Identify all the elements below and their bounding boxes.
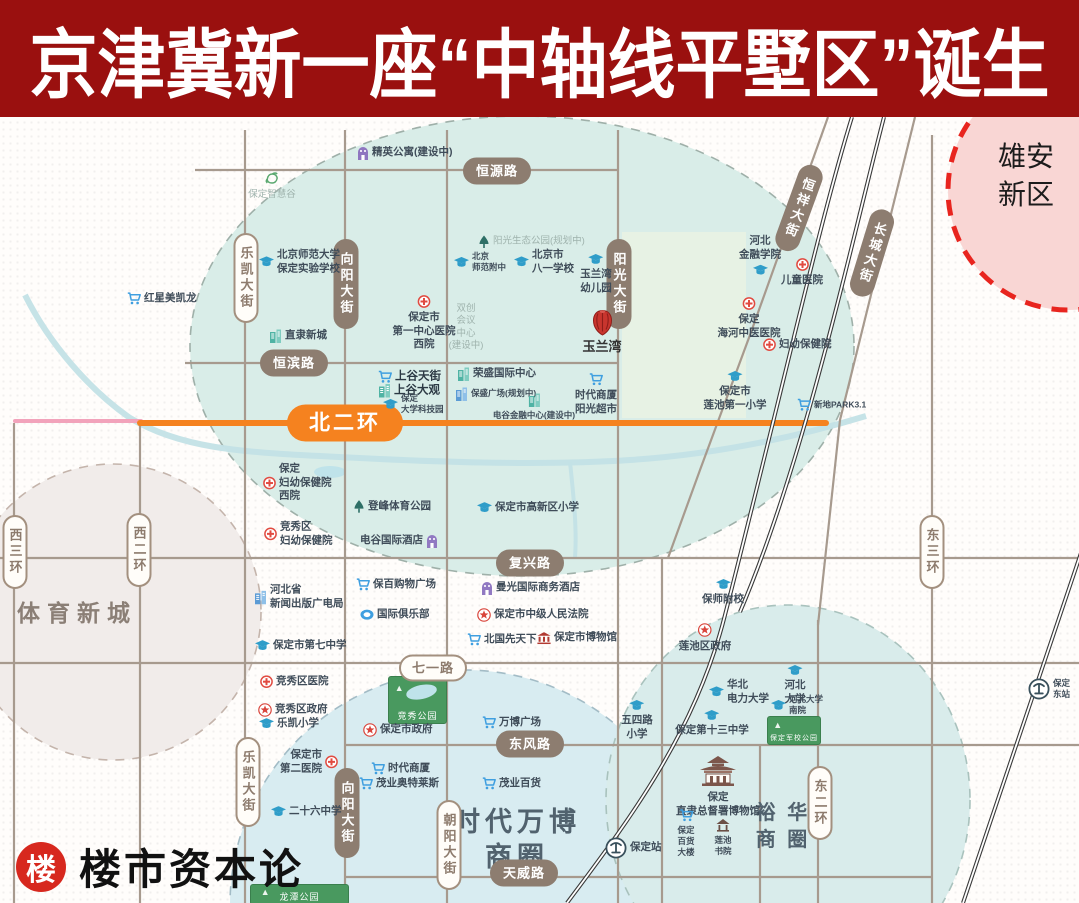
poi-hospital: 保定市 第二医院: [280, 748, 338, 775]
poi-club: 国际俱乐部: [360, 608, 430, 622]
cart-icon: [467, 633, 481, 646]
building-purple-icon: [357, 146, 369, 160]
school-icon: [716, 579, 731, 590]
school-icon: [728, 371, 743, 382]
tree-icon: ▲: [773, 720, 782, 730]
hospital-icon: [743, 297, 756, 310]
school-icon: [259, 257, 274, 268]
poi-hospital: 妇幼保健院: [763, 338, 832, 352]
poi-station: 保定 东站: [1028, 678, 1070, 700]
school-icon: [630, 700, 645, 711]
poi-cart: 茂业百货: [482, 777, 541, 791]
star-icon: [363, 723, 377, 737]
poi-building-purple: 精英公寓(建设中): [357, 146, 453, 160]
poi-cart: 茂业奥特莱斯: [359, 777, 439, 791]
hospital-icon: [763, 338, 776, 351]
temple-icon: [695, 756, 741, 788]
poi-label: 北京 师范附中: [472, 251, 506, 273]
cart-icon: [359, 777, 373, 790]
poi-school: 保定第十三中学: [675, 710, 749, 738]
poi-label: 保定 妇幼保健院 西院: [279, 463, 332, 504]
poi-school: 北京 师范附中: [454, 251, 506, 273]
poi-school: 保师附校: [702, 579, 744, 607]
poi-hospital: 保定 海河中医医院: [718, 297, 781, 340]
poi-cart: 北国先天下: [467, 633, 537, 647]
road-label: 西三环: [3, 515, 28, 589]
tree-icon: ▲: [395, 683, 404, 693]
cart-icon: [797, 399, 811, 412]
poi-park: 阳光生态公园(规划中): [478, 236, 585, 249]
road-label: 朝阳大街: [437, 800, 462, 890]
logo: 楼 楼市资本论: [16, 836, 304, 897]
star-icon: [698, 623, 712, 637]
poi-hospital: 保定 妇幼保健院 西院: [263, 463, 332, 504]
poi-label: 阳光生态公园(规划中): [493, 236, 585, 248]
poi-label: 曼光国际商务酒店: [496, 581, 580, 595]
school-icon: [383, 399, 398, 410]
poi-label: 河北 金融学院: [739, 235, 781, 262]
building-green-icon: [527, 393, 540, 407]
poi-label: 保师附校: [702, 593, 744, 607]
school-icon: [271, 806, 286, 817]
cart-icon: [356, 578, 370, 591]
poi-hotel: 电谷国际酒店: [360, 534, 438, 548]
school-icon: [771, 700, 786, 711]
poi-star: 保定市政府: [363, 723, 433, 737]
poi-label: 登峰体育公园: [368, 500, 431, 514]
poi-label: 北京师范大学 保定实验学校: [277, 248, 340, 275]
poi-none: 双创 会议 中心 (建设中): [449, 303, 484, 352]
poi-label: 保定市中级人民法院: [494, 608, 589, 622]
valley-icon: [263, 171, 281, 186]
cart-icon: [589, 373, 603, 386]
poi-label: 时代商厦: [388, 762, 430, 776]
poi-label: 河北大学 南院: [789, 694, 823, 716]
poi-label: 妇幼保健院: [779, 338, 832, 352]
poi-cart: 红星美凯龙: [127, 292, 197, 306]
map-canvas: [0, 0, 1079, 903]
park-block: ▲保定军校公园: [767, 716, 821, 745]
star-icon: [477, 608, 491, 622]
poi-label: 上谷天街: [395, 370, 441, 385]
poi-station: 保定站: [605, 837, 662, 859]
poi-label: 红星美凯龙: [144, 292, 197, 306]
poi-label: 五四路 小学: [621, 714, 653, 741]
school-icon: [259, 718, 274, 729]
poi-label: 二十六中学: [289, 805, 342, 819]
logo-title: 楼市资本论: [79, 836, 304, 897]
poi-label: 河北省 新闻出版广电局: [270, 583, 344, 610]
poi-valley: 保定智慧谷: [248, 171, 296, 201]
poi-label: 保定市政府: [380, 723, 433, 737]
park-icon: [353, 500, 365, 513]
poi-label: 茂业奥特莱斯: [376, 777, 439, 791]
poi-school: 保定市 莲池第一小学: [704, 371, 767, 412]
poi-star: 竞秀区政府: [258, 703, 328, 717]
poi-label: 保定 大学科技园: [401, 393, 444, 415]
road-label: 乐凯大街: [234, 233, 259, 323]
school-icon: [788, 665, 803, 676]
poi-label: 玉兰湾: [582, 339, 621, 356]
station-icon: [605, 837, 627, 859]
poi-label: 保定 百货 大楼: [677, 825, 694, 858]
poi-label: 茂业百货: [499, 777, 541, 791]
poi-label: 保百购物广场: [373, 578, 436, 592]
poi-star: 莲池区政府: [679, 623, 732, 654]
hotel-icon: [481, 581, 493, 595]
road-label: 复兴路: [496, 550, 564, 577]
road-label: 东二环: [808, 766, 833, 840]
poi-label: 乐凯小学: [277, 717, 319, 731]
poi-label: 保定第十三中学: [675, 724, 749, 738]
poi-hospital: 儿童医院: [781, 258, 823, 288]
cart-icon: [371, 762, 385, 775]
road-label: 天威路: [490, 860, 558, 887]
poi-label: 保定市高新区小学: [495, 501, 579, 515]
park-lake: [405, 682, 439, 702]
poi-label: 玉兰湾 幼儿园: [580, 268, 612, 295]
star-icon: [258, 703, 272, 717]
poi-label: 竞秀区医院: [276, 675, 329, 689]
poi-label: 国际俱乐部: [377, 608, 430, 622]
school-icon: [709, 687, 724, 698]
poi-school: 保定 大学科技园: [383, 393, 444, 415]
poi-school: 保定市高新区小学: [477, 501, 579, 515]
poi-label: 新地PARK3.1: [814, 399, 866, 410]
poi-label: 保定市第七中学: [273, 639, 347, 653]
poi-school: 河北大学 南院: [771, 694, 823, 716]
park-label: 保定军校公园: [770, 735, 818, 744]
pin-icon: [591, 309, 613, 336]
poi-hospital: 保定市 第一中心医院 西院: [393, 295, 456, 352]
poi-label: 北京市 八一学校: [532, 248, 574, 275]
school-icon: [255, 640, 270, 651]
poi-label: 精英公寓(建设中): [372, 146, 453, 160]
club-icon: [360, 609, 374, 620]
poi-label: 保定市 第二医院: [280, 748, 322, 775]
xiongan-badge-label: 雄安 新区: [982, 138, 1070, 214]
hospital-icon: [325, 756, 338, 769]
featured-pin: 玉兰湾: [582, 309, 621, 356]
cart-icon: [482, 777, 496, 790]
school-icon: [753, 265, 768, 276]
area-label: 裕 华 商 圈: [756, 800, 811, 854]
poi-label: 保定站: [630, 841, 662, 855]
road-label: 东三环: [920, 515, 945, 589]
poi-school: 华北 电力大学: [709, 678, 769, 705]
infographic: 京津冀新一座“中轴线平墅区”诞生 雄安 新区 乐凯大街向阳大街恒源路恒滨路阳光大…: [0, 0, 1079, 903]
hospital-icon: [418, 295, 431, 308]
poi-label: 竞秀区政府: [275, 703, 328, 717]
poi-star: 保定市中级人民法院: [477, 608, 589, 622]
banner-title: 京津冀新一座“中轴线平墅区”诞生: [29, 4, 1049, 113]
poi-cart: 时代商厦 阳光超市: [575, 373, 617, 416]
park-block: ▲竞秀公园: [388, 676, 447, 724]
poi-building-green: 电谷金融中心(建设中): [493, 393, 575, 421]
hospital-icon: [260, 675, 273, 688]
cart-icon: [482, 716, 496, 729]
poi-cart: 时代商厦: [371, 762, 430, 776]
poi-park: 登峰体育公园: [353, 500, 431, 514]
highlight-roads: [15, 421, 826, 423]
poi-cart: 上谷天街: [378, 370, 441, 385]
poi-label: 保定市博物馆: [554, 631, 617, 645]
poi-label: 时代商厦 阳光超市: [575, 389, 617, 416]
poi-label: 儿童医院: [781, 274, 823, 288]
hospital-icon: [796, 258, 809, 271]
hospital-icon: [263, 476, 276, 489]
poi-school: 乐凯小学: [259, 717, 319, 731]
poi-label: 双创 会议 中心 (建设中): [449, 303, 484, 352]
poi-label: 保定 东站: [1053, 678, 1070, 700]
poi-label: 保定市 莲池第一小学: [704, 385, 767, 412]
poi-hotel: 曼光国际商务酒店: [481, 581, 580, 595]
cart-icon: [127, 292, 141, 305]
poi-label: 保定市 第一中心医院 西院: [393, 311, 456, 352]
road-label: 七一路: [399, 655, 467, 682]
museum-icon: [537, 632, 551, 644]
building-blue-icon: [455, 387, 468, 401]
poi-label: 万博广场: [499, 716, 541, 730]
poi-label: 莲池区政府: [679, 640, 732, 654]
poi-label: 保定智慧谷: [248, 189, 296, 201]
poi-hospital: 竞秀区 妇幼保健院: [264, 520, 333, 547]
poi-label: 北国先天下: [484, 633, 537, 647]
road-label: 恒滨路: [260, 350, 328, 377]
poi-label: 荣盛国际中心: [473, 367, 536, 381]
hospital-icon: [264, 528, 277, 541]
poi-label: 直隶新城: [285, 329, 327, 343]
banner: 京津冀新一座“中轴线平墅区”诞生: [0, 0, 1079, 117]
poi-school: 保定市第七中学: [255, 639, 347, 653]
school-icon: [514, 257, 529, 268]
road-label: 乐凯大街: [236, 737, 261, 827]
poi-building-green: 直隶新城: [269, 329, 327, 343]
poi-pavilion: 莲池 书院: [714, 819, 731, 857]
poi-label: 电谷国际酒店: [360, 534, 423, 548]
poi-building-blue: 河北省 新闻出版广电局: [254, 583, 344, 610]
park-label: 竞秀公园: [397, 712, 437, 723]
logo-mark-icon: 楼: [16, 842, 66, 892]
poi-school: 二十六中学: [271, 805, 342, 819]
road-label: 东风路: [496, 731, 564, 758]
poi-hospital: 竞秀区医院: [260, 675, 329, 689]
poi-label: 华北 电力大学: [727, 678, 769, 705]
poi-school: 河北 金融学院: [739, 235, 781, 276]
poi-label: 电谷金融中心(建设中): [493, 410, 575, 421]
area-label: 体育新城: [17, 594, 137, 628]
poi-label: 竞秀区 妇幼保健院: [280, 520, 333, 547]
station-icon: [1028, 678, 1050, 700]
park-icon: [478, 236, 490, 249]
cart-icon: [378, 371, 392, 384]
school-icon: [589, 254, 604, 265]
poi-school: 五四路 小学: [621, 700, 653, 741]
poi-label: 保定 海河中医医院: [718, 313, 781, 340]
poi-school: 北京市 八一学校: [514, 248, 574, 275]
building-green-icon: [269, 329, 282, 343]
building-green-icon: [457, 367, 470, 381]
hotel-icon: [426, 534, 438, 548]
poi-cart: 保定 百货 大楼: [677, 809, 694, 858]
school-icon: [477, 502, 492, 513]
building-blue-icon: [254, 590, 267, 604]
poi-label: 莲池 书院: [714, 835, 731, 857]
poi-building-green: 荣盛国际中心: [457, 367, 536, 381]
road-label: 恒源路: [463, 158, 531, 185]
poi-cart: 新地PARK3.1: [797, 399, 866, 412]
school-icon: [454, 257, 469, 268]
poi-school: 北京师范大学 保定实验学校: [259, 248, 340, 275]
poi-cart: 万博广场: [482, 716, 541, 730]
cart-icon: [679, 809, 693, 822]
poi-school: 玉兰湾 幼儿园: [580, 254, 612, 295]
pavilion-icon: [715, 819, 730, 832]
school-icon: [705, 710, 720, 721]
poi-museum: 保定市博物馆: [537, 631, 617, 645]
poi-cart: 保百购物广场: [356, 578, 436, 592]
road-label: 西二环: [127, 513, 152, 587]
